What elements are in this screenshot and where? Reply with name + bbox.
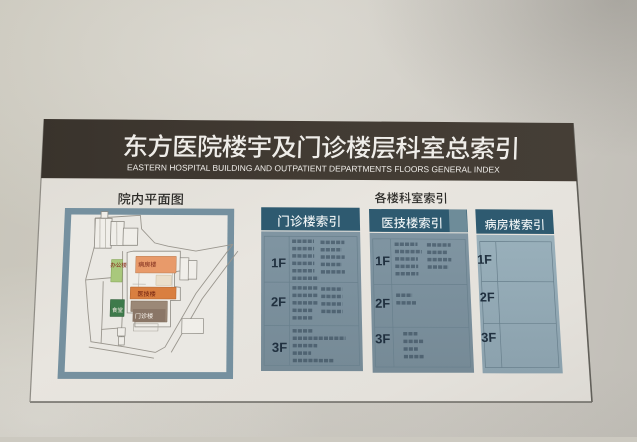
svg-text:2F: 2F	[375, 296, 391, 311]
svg-text:3F: 3F	[375, 331, 391, 346]
svg-text:1F: 1F	[477, 253, 493, 267]
svg-text:1F: 1F	[271, 255, 286, 270]
svg-text:3F: 3F	[481, 330, 497, 345]
svg-text:1F: 1F	[375, 253, 390, 268]
svg-text:2F: 2F	[479, 289, 495, 304]
svg-text:3F: 3F	[272, 340, 287, 355]
svg-text:2F: 2F	[271, 294, 286, 309]
